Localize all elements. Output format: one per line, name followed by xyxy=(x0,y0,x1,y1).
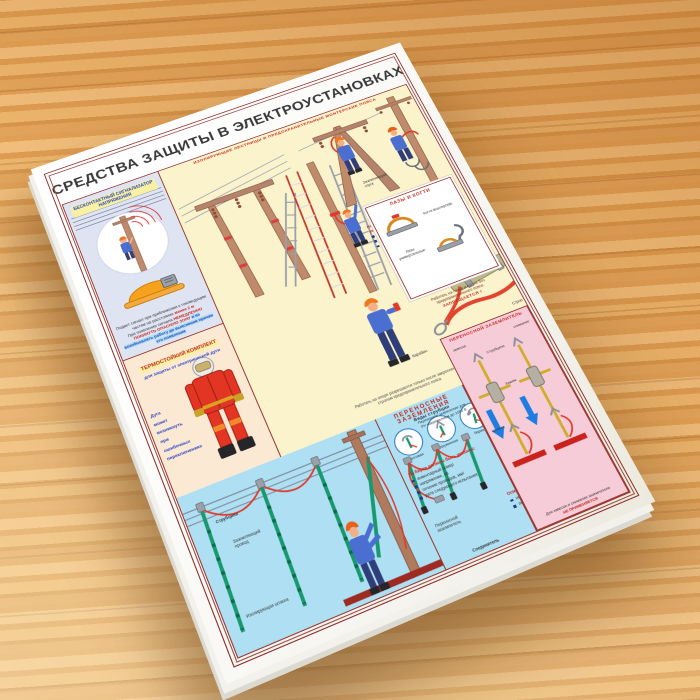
connector-label: Соединитель xyxy=(471,537,500,553)
pink-note: Для завески и снимания заземлителя НЕ ПР… xyxy=(531,479,626,526)
universal-claws-label: Лазы универсальные xyxy=(392,242,429,262)
arrow-up-icon xyxy=(516,394,543,427)
photo-scene: СРЕДСТВА ЗАЩИТЫ В ЭЛЕКТРОУСТАНОВКАХ xyxy=(0,0,700,700)
claws-item-label: Когти монтерские xyxy=(421,201,456,217)
